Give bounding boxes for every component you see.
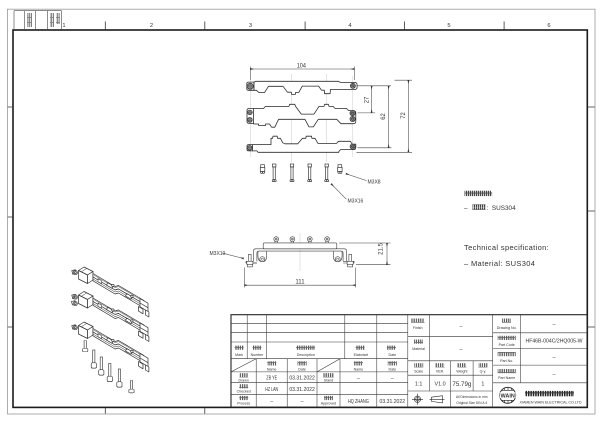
svg-text:–: – — [553, 355, 556, 361]
svg-text:Scale: Scale — [414, 370, 423, 374]
svg-text:Mark: Mark — [235, 353, 243, 357]
svg-text:104: 104 — [297, 62, 307, 69]
svg-text:VER.: VER. — [436, 370, 444, 374]
svg-text:Number: Number — [251, 353, 265, 357]
svg-text:–: – — [553, 322, 556, 328]
svg-text:Date: Date — [389, 367, 397, 371]
svg-text:Finish: Finish — [413, 326, 423, 330]
svg-text:HZ LAN: HZ LAN — [265, 387, 278, 393]
svg-text:5: 5 — [447, 23, 450, 29]
svg-text:62: 62 — [380, 113, 387, 120]
svg-text:72: 72 — [400, 112, 407, 119]
svg-text:03.31.2022: 03.31.2022 — [289, 387, 315, 393]
svg-text:1: 1 — [481, 382, 484, 388]
svg-text:Checked: Checked — [237, 390, 251, 394]
svg-text:Date: Date — [298, 367, 306, 371]
svg-text:: SUS304: : SUS304 — [487, 205, 517, 212]
svg-text:Name: Name — [354, 367, 364, 371]
svg-text:Weight: Weight — [456, 370, 467, 374]
svg-text:Q-y.: Q-y. — [480, 370, 487, 374]
svg-text:21.5: 21.5 — [378, 243, 385, 255]
svg-text:–: – — [460, 347, 463, 353]
svg-text:3: 3 — [249, 23, 252, 29]
svg-text:Original Size DIN A 4: Original Size DIN A 4 — [456, 401, 487, 405]
svg-text:M3X8: M3X8 — [368, 179, 381, 185]
svg-text:2: 2 — [150, 23, 153, 29]
svg-text:Part Code: Part Code — [499, 343, 515, 347]
svg-text:Part No.: Part No. — [500, 359, 513, 363]
svg-text:1:1: 1:1 — [415, 382, 423, 388]
svg-text:75.79g: 75.79g — [452, 381, 471, 388]
svg-text:Elabotart: Elabotart — [354, 353, 368, 357]
svg-text:Drawn: Drawn — [239, 379, 249, 383]
svg-text:27: 27 — [363, 96, 370, 103]
svg-text:–: – — [301, 399, 304, 405]
svg-text:M3X10: M3X10 — [210, 251, 226, 257]
svg-text:–: – — [553, 372, 556, 378]
svg-text:HF46B-004C/2HQ005-W: HF46B-004C/2HQ005-W — [526, 339, 583, 345]
svg-text:Drawing No.: Drawing No. — [497, 326, 517, 330]
svg-text:Description: Description — [297, 353, 315, 357]
svg-text:Date: Date — [389, 353, 397, 357]
svg-text:Part Name: Part Name — [498, 376, 515, 380]
svg-text:Stand: Stand — [324, 379, 333, 383]
svg-text:111: 111 — [295, 278, 305, 285]
svg-text:–: – — [460, 324, 463, 330]
svg-text:Material: Material — [412, 347, 425, 351]
svg-text:M3X16: M3X16 — [348, 199, 364, 205]
svg-text:1: 1 — [62, 23, 65, 29]
svg-text:–: – — [270, 399, 273, 405]
svg-text:ZB YE: ZB YE — [266, 376, 277, 382]
svg-text:Technical specification:: Technical specification: — [464, 243, 549, 252]
svg-text:Approved: Approved — [321, 402, 336, 406]
svg-text:6: 6 — [547, 23, 550, 29]
svg-text:–: – — [464, 205, 468, 212]
svg-text:V1.0: V1.0 — [435, 382, 446, 388]
svg-text:XIAMEN WAIN ELECTRICAL CO.LTD: XIAMEN WAIN ELECTRICAL CO.LTD — [520, 400, 582, 404]
svg-text:Name: Name — [267, 367, 277, 371]
svg-text:WAIN: WAIN — [501, 394, 515, 400]
svg-text:Process: Process — [237, 402, 250, 406]
svg-text:03.31.2022: 03.31.2022 — [289, 376, 315, 382]
svg-text:–: – — [391, 376, 394, 382]
svg-text:All Dimensions in mm: All Dimensions in mm — [456, 395, 488, 399]
svg-text:– Material: SUS304: – Material: SUS304 — [464, 259, 535, 268]
svg-text:HQ ZHANG: HQ ZHANG — [348, 399, 369, 405]
svg-text:–: – — [357, 376, 360, 382]
svg-text:03.31.2022: 03.31.2022 — [380, 399, 406, 405]
